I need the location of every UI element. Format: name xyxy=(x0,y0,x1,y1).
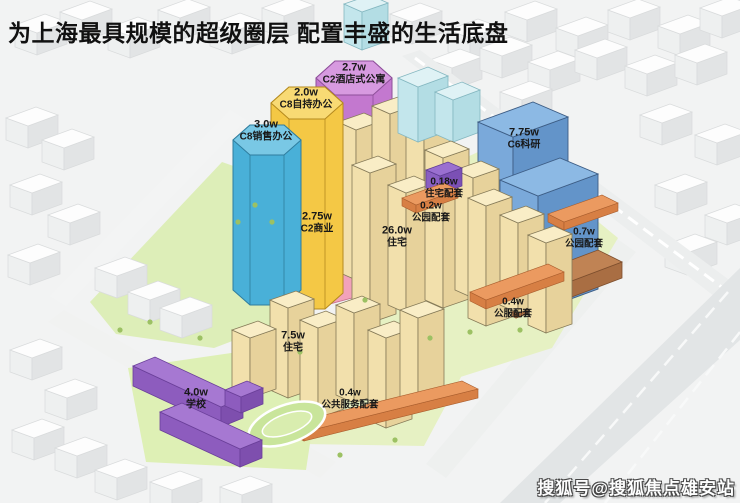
watermark: 搜狐号@搜狐焦点雄安站 xyxy=(537,474,735,499)
page-title: 为上海最具规模的超级圈层 配置丰盛的生活底盘 xyxy=(8,14,508,48)
masterplan-slide: 为上海最具规模的超级圈层 配置丰盛的生活底盘 3.0w C8销售办公 2.0w … xyxy=(0,0,740,503)
sales-office-tower xyxy=(233,125,301,305)
masterplan-map xyxy=(0,0,740,503)
